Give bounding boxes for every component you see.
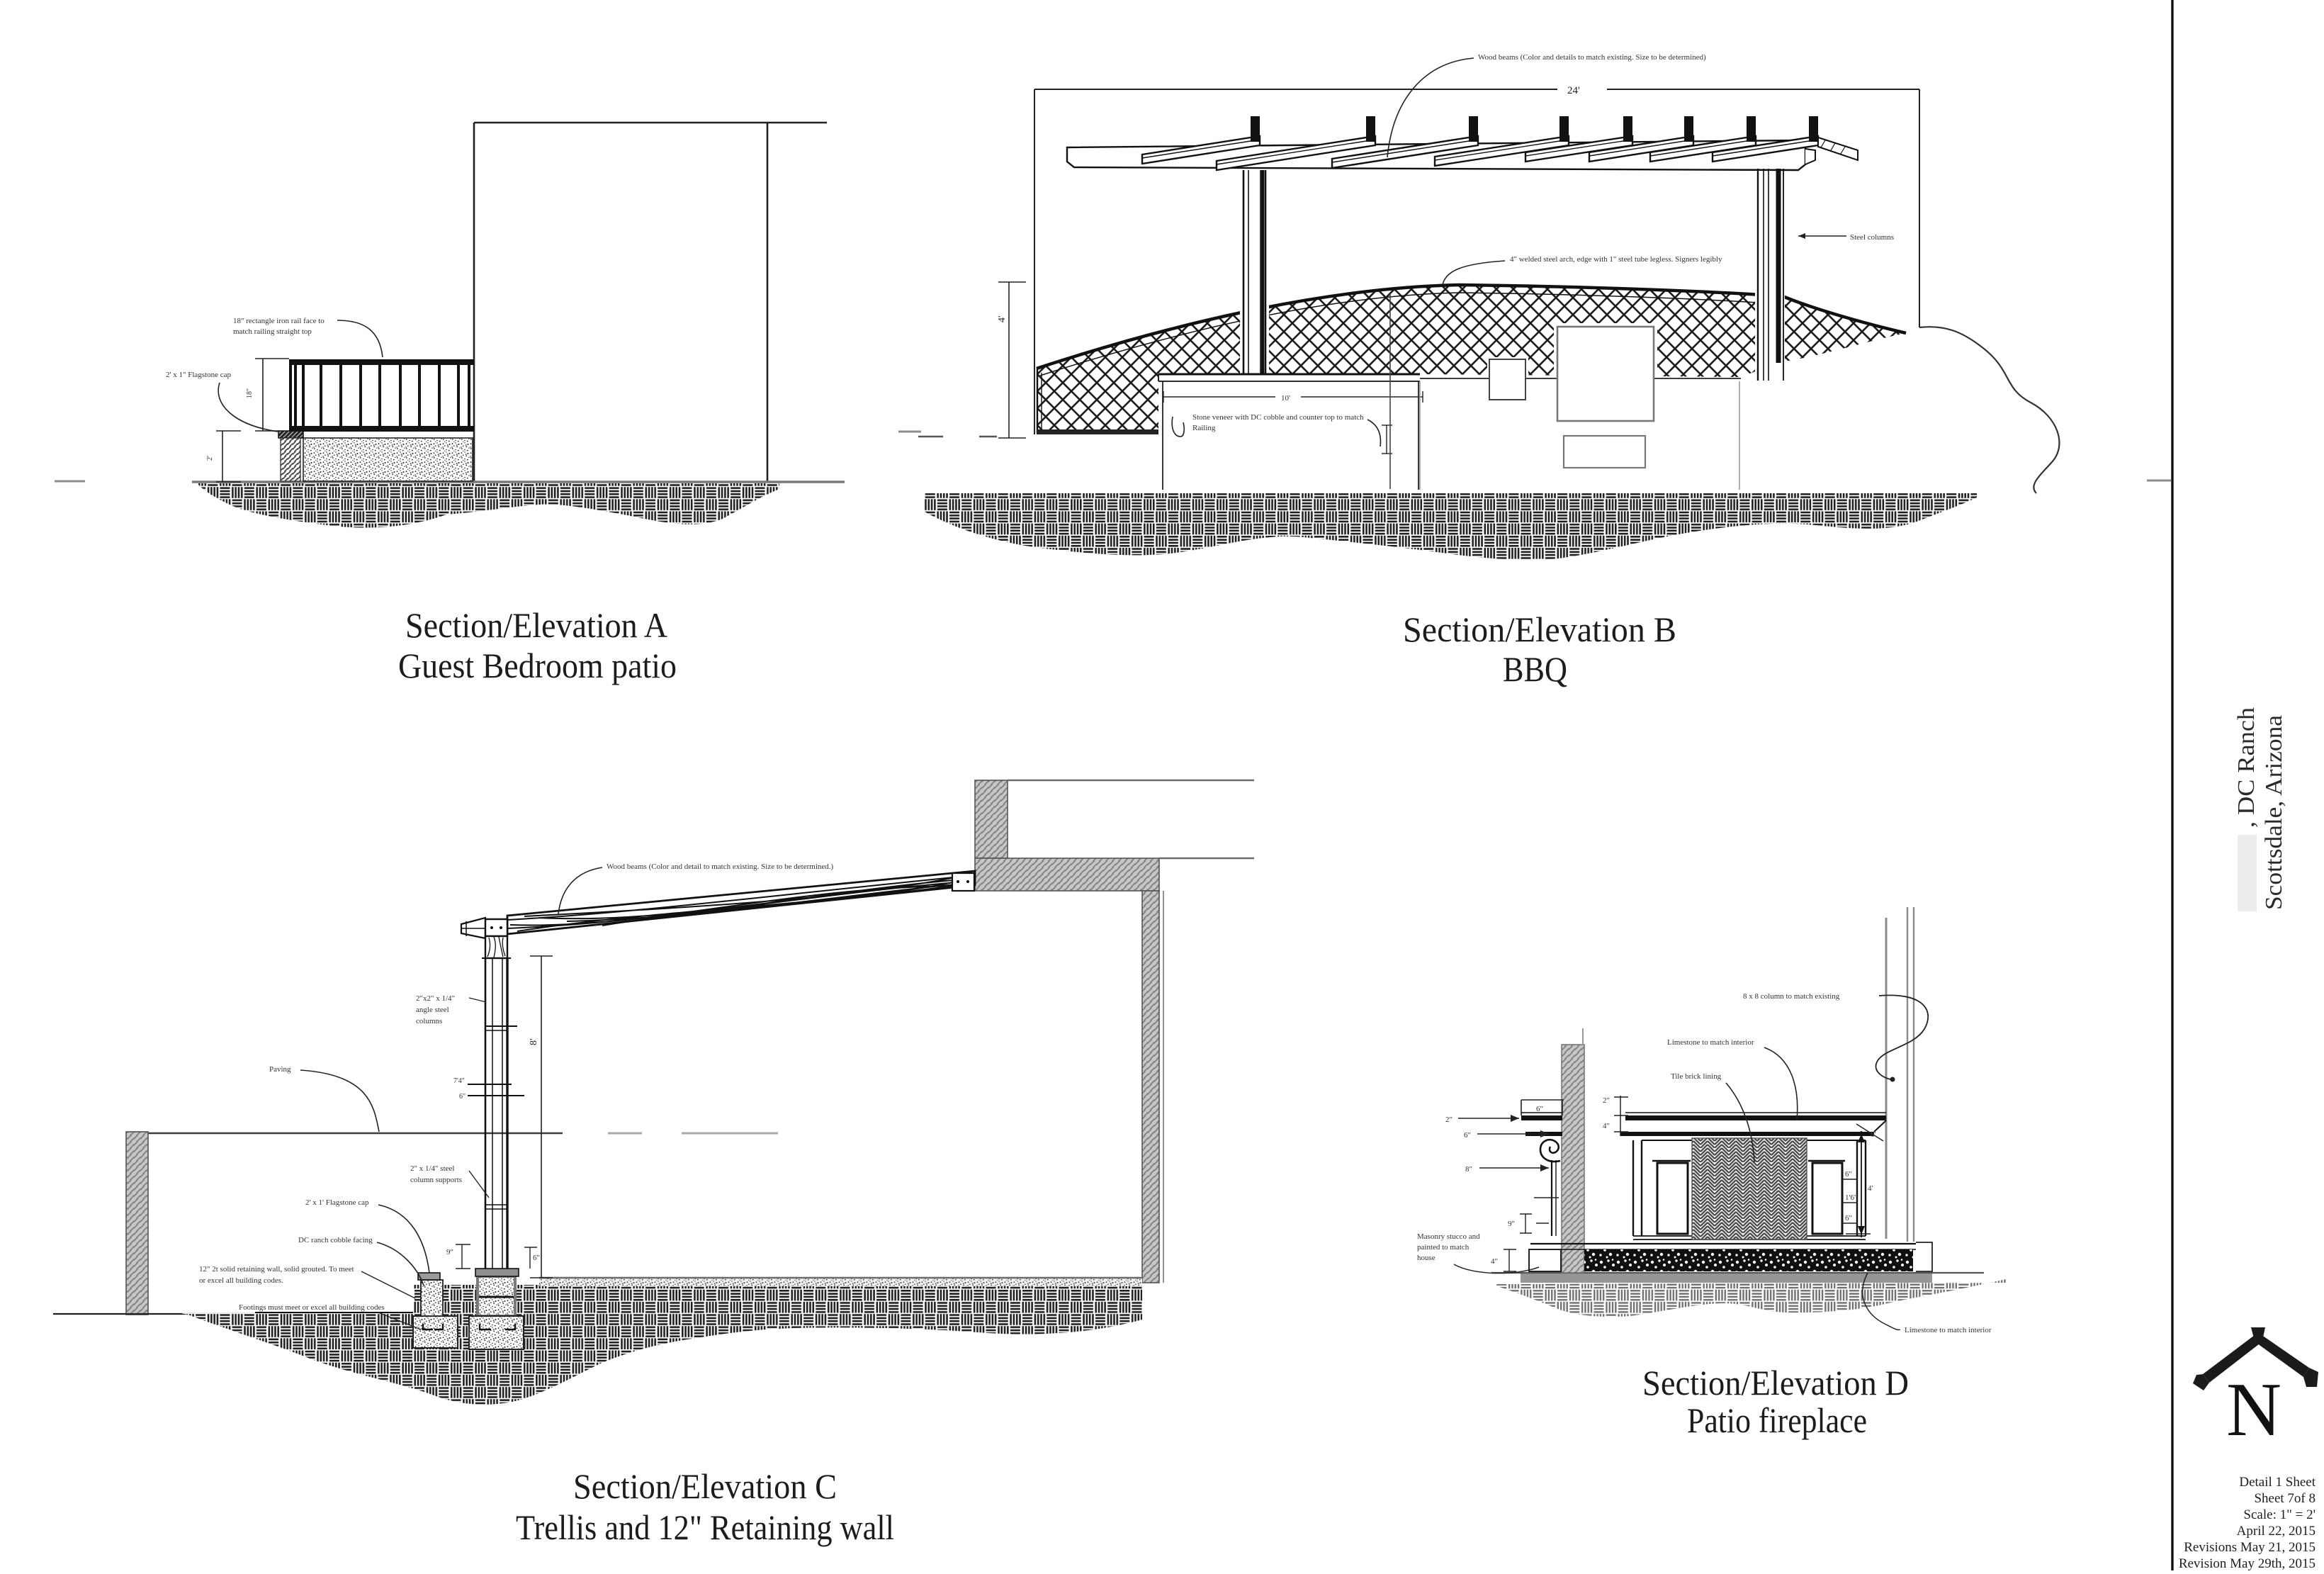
svg-text:match railing straight top: match railing straight top [233, 327, 312, 336]
svg-text:2' x 1" Flagstone cap: 2' x 1" Flagstone cap [166, 371, 232, 379]
svg-text:7'4": 7'4" [453, 1077, 465, 1085]
svg-text:columns: columns [416, 1017, 442, 1025]
svg-text:Section/Elevation B: Section/Elevation B [1403, 609, 1676, 649]
svg-text:2": 2" [1603, 1096, 1610, 1105]
svg-text:4" welded steel arch, edge wit: 4" welded steel arch, edge with 1" steel… [1510, 255, 1722, 264]
svg-text:column supports: column supports [410, 1176, 462, 1184]
svg-text:Trellis and 12" Retaining wall: Trellis and 12" Retaining wall [516, 1507, 894, 1547]
svg-text:Masonry stucco and: Masonry stucco and [1417, 1232, 1480, 1241]
svg-text:8': 8' [529, 1038, 539, 1045]
svg-text:10': 10' [1281, 394, 1290, 403]
svg-text:Limestone to match interior: Limestone to match interior [1905, 1326, 1992, 1334]
svg-text:4': 4' [1868, 1184, 1873, 1193]
svg-text:Wood beams (Color and detail t: Wood beams (Color and detail to match ex… [607, 862, 834, 871]
svg-text:8": 8" [1465, 1165, 1472, 1174]
svg-text:Revisions May 21, 2015: Revisions May 21, 2015 [2184, 1540, 2315, 1555]
svg-text:N: N [2226, 1368, 2281, 1452]
svg-text:8 x 8 column to match existing: 8 x 8 column to match existing [1743, 992, 1840, 1001]
svg-text:BBQ: BBQ [1503, 649, 1567, 689]
svg-text:Detail 1 Sheet: Detail 1 Sheet [2239, 1475, 2315, 1490]
svg-text:6": 6" [1464, 1131, 1471, 1140]
svg-text:Stone veneer with DC cobble an: Stone veneer with DC cobble and counter … [1192, 413, 1364, 422]
svg-text:Tile brick lining: Tile brick lining [1671, 1072, 1722, 1081]
svg-text:9": 9" [1508, 1220, 1515, 1228]
svg-text:April 22, 2015: April 22, 2015 [2237, 1524, 2315, 1539]
svg-text:18" rectangle iron rail face t: 18" rectangle iron rail face to [233, 317, 325, 325]
svg-text:24': 24' [1567, 85, 1580, 96]
svg-text:2" x 1/4" steel: 2" x 1/4" steel [410, 1164, 454, 1173]
svg-text:Section/Elevation C: Section/Elevation C [573, 1466, 837, 1506]
svg-text:DC ranch cobble facing: DC ranch cobble facing [298, 1236, 373, 1244]
svg-text:Wood beams (Color and details: Wood beams (Color and details to match e… [1478, 53, 1706, 62]
svg-text:Scottsdale, Arizona: Scottsdale, Arizona [2261, 715, 2287, 910]
svg-text:Section/Elevation A: Section/Elevation A [405, 605, 667, 645]
svg-text:6": 6" [1536, 1105, 1543, 1113]
svg-text:4': 4' [997, 315, 1008, 322]
svg-text:Patio fireplace: Patio fireplace [1687, 1400, 1867, 1440]
svg-text:6": 6" [533, 1254, 540, 1262]
svg-text:1'6": 1'6" [1845, 1193, 1857, 1202]
svg-text:Steel columns: Steel columns [1850, 233, 1894, 242]
svg-text:9": 9" [446, 1248, 453, 1257]
svg-text:Paving: Paving [269, 1065, 291, 1074]
svg-text:6': 6' [1871, 1130, 1876, 1139]
svg-text:12" 2t solid retaining wall, s: 12" 2t solid retaining wall, solid grout… [199, 1265, 354, 1274]
svg-text:Revision May 29th, 2015: Revision May 29th, 2015 [2179, 1556, 2315, 1570]
svg-text:Guest Bedroom patio: Guest Bedroom patio [398, 646, 677, 685]
svg-text:Section/Elevation D: Section/Elevation D [1642, 1363, 1909, 1402]
svg-text:house: house [1417, 1254, 1435, 1262]
svg-text:2': 2' [206, 456, 214, 461]
svg-text:Limestone to match interior: Limestone to match interior [1667, 1038, 1754, 1047]
svg-text:Scale: 1" = 2': Scale: 1" = 2' [2243, 1507, 2315, 1522]
svg-text:4": 4" [1491, 1257, 1498, 1266]
svg-text:or excel all building codes.: or excel all building codes. [199, 1276, 283, 1285]
svg-text:6": 6" [1845, 1170, 1852, 1179]
svg-text:2": 2" [1445, 1115, 1452, 1124]
svg-text:Sheet 7of 8: Sheet 7of 8 [2254, 1491, 2315, 1506]
svg-text:6": 6" [1845, 1214, 1852, 1222]
svg-text:6": 6" [459, 1093, 466, 1101]
svg-text:, DC Ranch: , DC Ranch [2233, 707, 2260, 828]
svg-text:angle steel: angle steel [416, 1006, 449, 1014]
svg-text:2' x 1' Flagstone cap: 2' x 1' Flagstone cap [305, 1198, 369, 1207]
svg-text:painted to match: painted to match [1417, 1243, 1470, 1252]
svg-text:Railing: Railing [1192, 424, 1216, 432]
svg-text:18": 18" [246, 388, 254, 398]
svg-text:Footings must meet or excel al: Footings must meet or excel all building… [239, 1303, 385, 1312]
svg-text:4": 4" [1603, 1122, 1610, 1130]
svg-text:2"x2" x 1/4": 2"x2" x 1/4" [416, 994, 455, 1003]
